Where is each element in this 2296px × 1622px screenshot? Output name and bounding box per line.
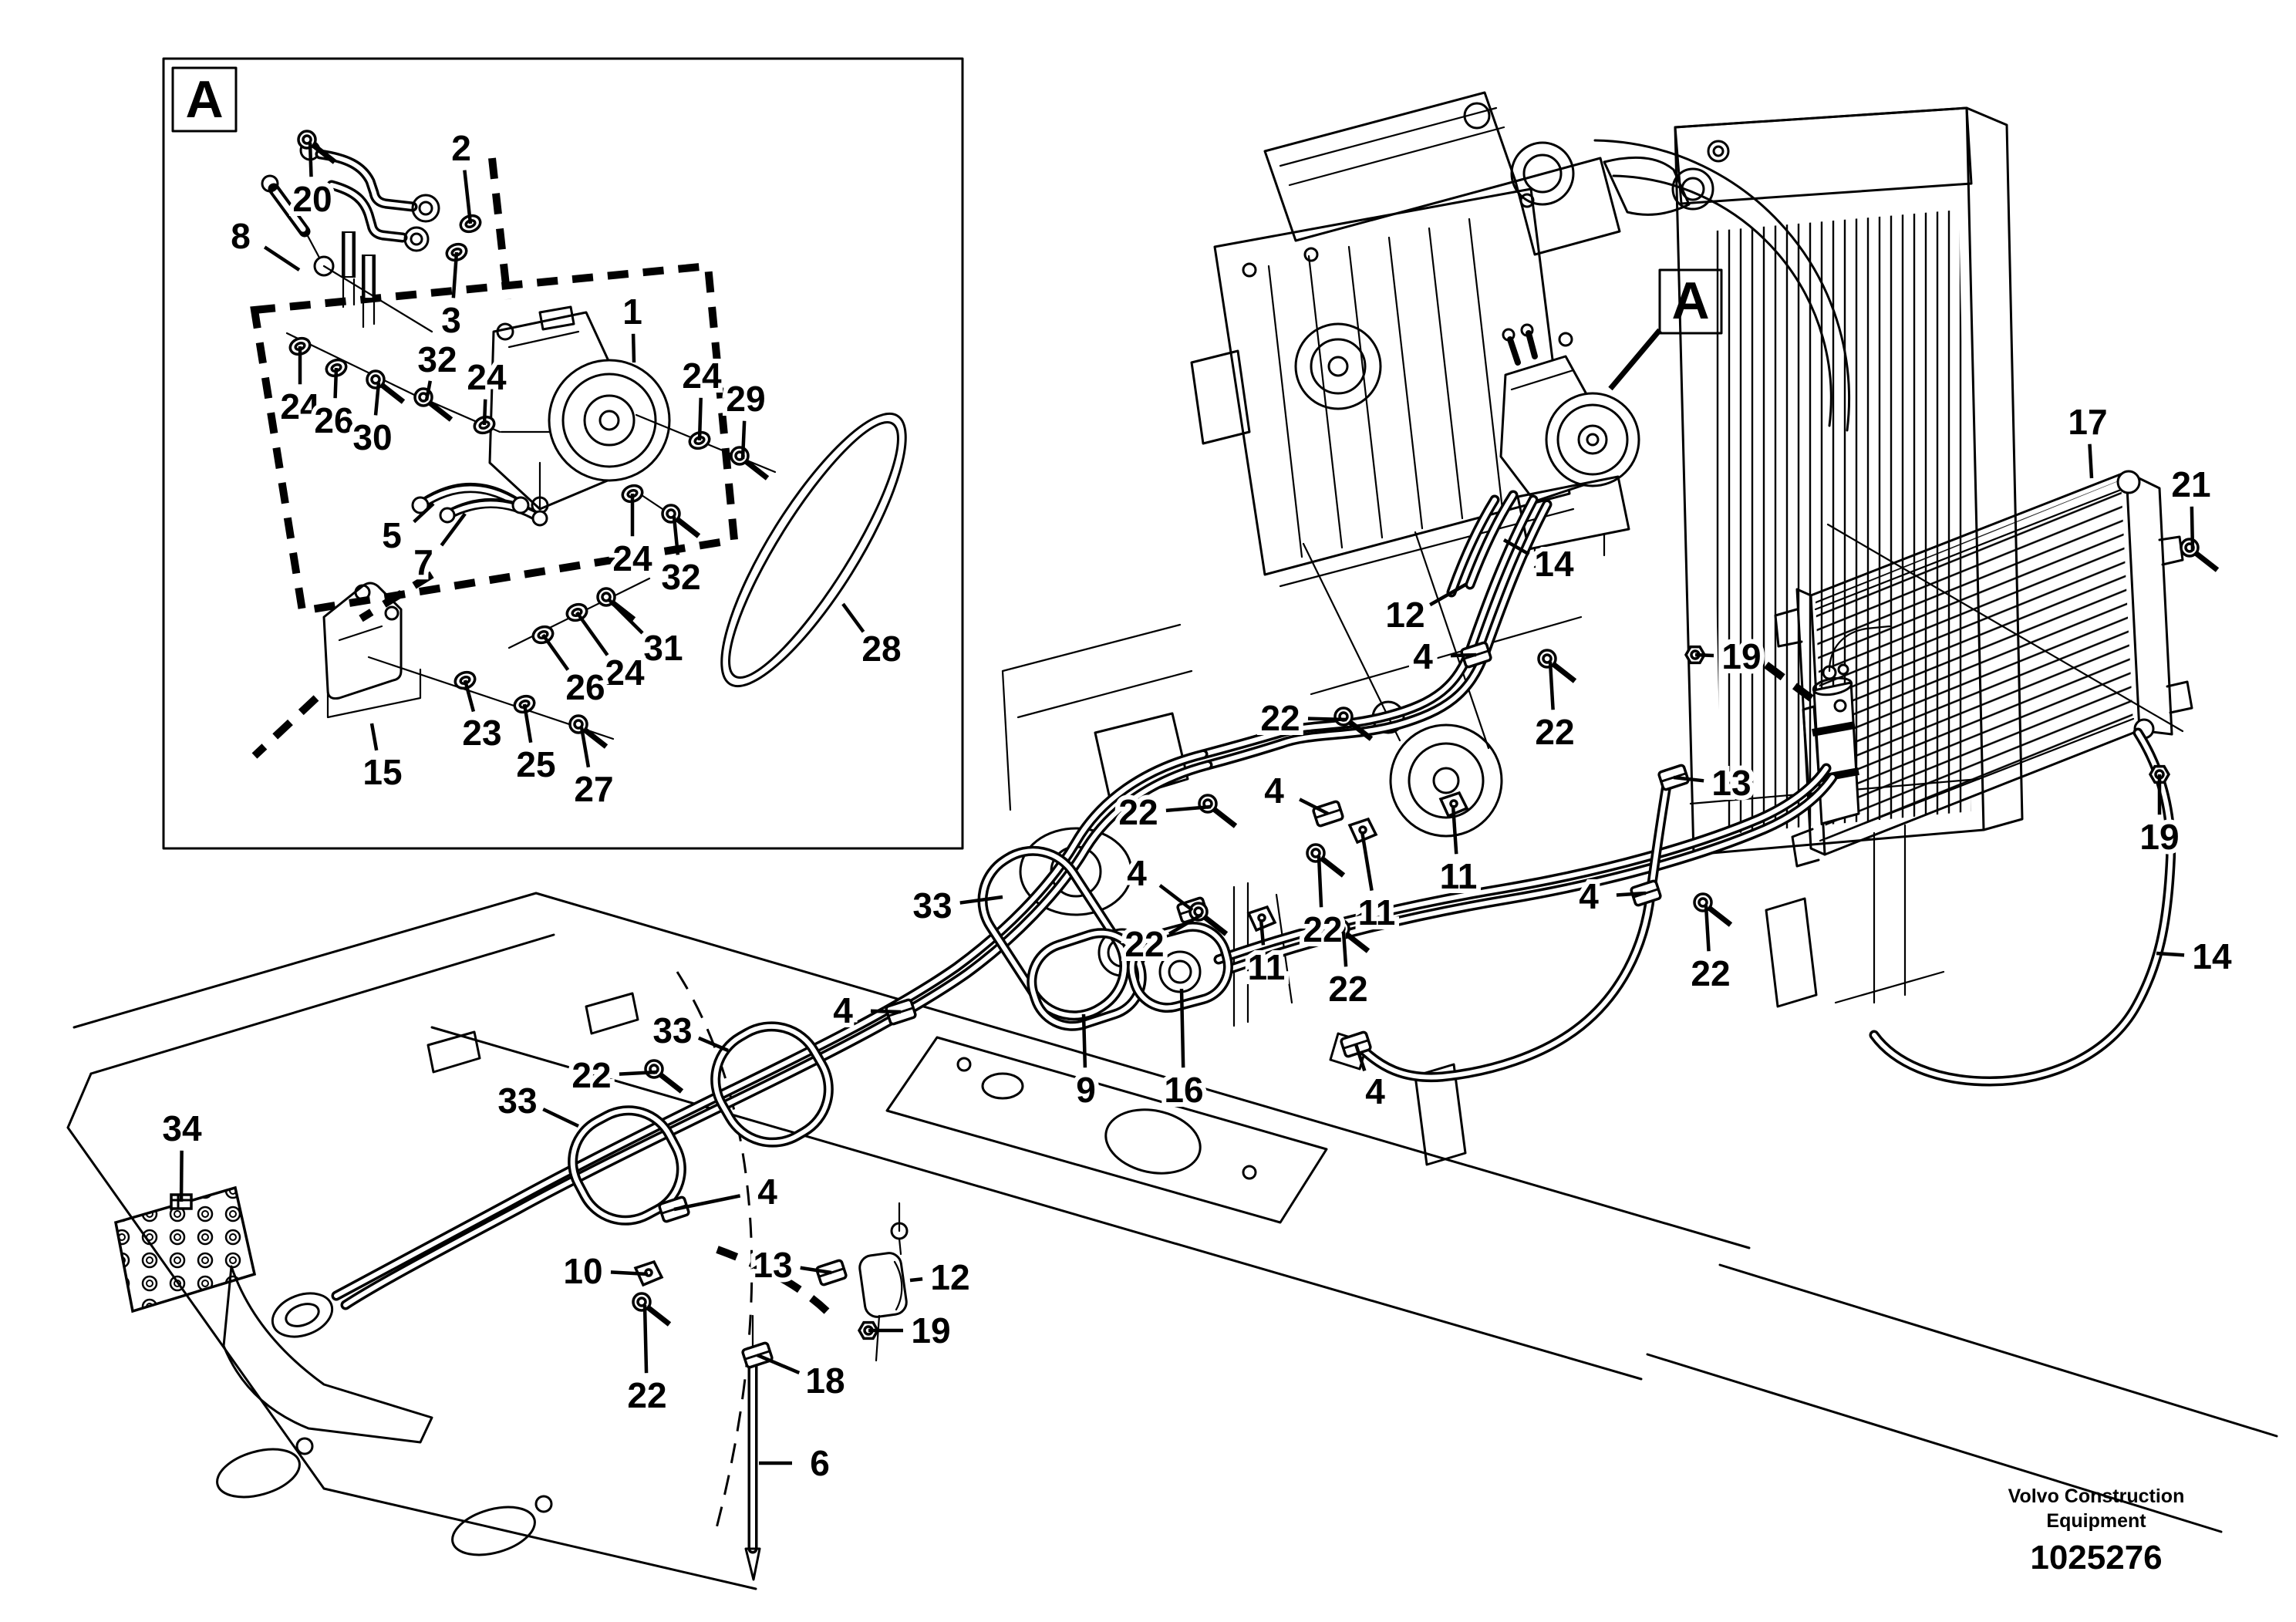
callout-leader — [1308, 719, 1347, 720]
callout-7: 7 — [413, 542, 433, 582]
callout-6: 6 — [810, 1443, 830, 1483]
callout-22: 22 — [1303, 909, 1342, 949]
callout-5: 5 — [382, 515, 402, 555]
part-glyph-bolt — [1199, 795, 1236, 826]
callout-leader — [609, 600, 642, 633]
part-glyph-bolt — [633, 1293, 669, 1324]
callout-22: 22 — [1691, 953, 1730, 993]
callout-19: 19 — [1721, 636, 1761, 676]
callout-22: 22 — [627, 1375, 666, 1415]
callout-11: 11 — [1358, 892, 1396, 932]
callout-30: 30 — [352, 417, 392, 457]
callout-14: 14 — [2192, 936, 2232, 976]
callout-25: 25 — [516, 744, 555, 784]
callout-24: 24 — [467, 357, 507, 397]
chassis-frame — [68, 825, 2277, 1589]
drain-valve — [858, 1252, 909, 1319]
callout-leader — [543, 1109, 578, 1126]
callout-leader — [843, 604, 863, 632]
callout-3: 3 — [441, 300, 461, 340]
callout-19: 19 — [2139, 817, 2179, 857]
callout-26: 26 — [565, 667, 605, 707]
callout-leader — [743, 421, 744, 459]
part-glyph-bolt — [415, 389, 451, 420]
callout-leader — [484, 400, 485, 425]
callout-leader — [619, 1072, 657, 1074]
callout-23: 23 — [462, 713, 501, 753]
callout-20: 20 — [292, 179, 332, 219]
callout-22: 22 — [1260, 698, 1300, 738]
compressor-bracket — [324, 583, 420, 717]
callout-11: 11 — [1440, 856, 1478, 896]
callout-11: 11 — [1248, 947, 1286, 987]
callout-leader — [871, 1011, 901, 1012]
callout-9: 9 — [1076, 1070, 1096, 1110]
callout-leader — [1182, 989, 1183, 1067]
part-glyph-bolt — [570, 716, 606, 747]
callout-leader — [1695, 655, 1714, 656]
callout-leader — [1261, 919, 1263, 945]
callout-leader — [611, 1272, 648, 1274]
callout-12: 12 — [1385, 595, 1424, 635]
callout-19: 19 — [911, 1310, 950, 1351]
callout-leader — [181, 1151, 182, 1202]
callout-4: 4 — [1413, 636, 1433, 676]
callout-22: 22 — [1124, 924, 1164, 964]
callout-leader — [265, 247, 299, 270]
callout-4: 4 — [757, 1172, 777, 1212]
callout-4: 4 — [1579, 876, 1599, 916]
callout-leader — [1160, 885, 1192, 910]
callout-21: 21 — [2171, 464, 2210, 504]
callout-leader — [1344, 932, 1346, 966]
callout-29: 29 — [726, 379, 765, 419]
callout-leader — [2156, 953, 2184, 955]
footer: Volvo Construction Equipment 1025276 — [2008, 1485, 2185, 1576]
callout-13: 13 — [1711, 763, 1751, 803]
refrigerant-pipes — [301, 141, 439, 327]
callout-22: 22 — [571, 1055, 611, 1095]
footer-brand-line2: Equipment — [2046, 1510, 2146, 1532]
callout-leader — [2089, 444, 2092, 478]
callout-leader — [2192, 507, 2193, 551]
callout-4: 4 — [1365, 1071, 1385, 1111]
callout-22: 22 — [1328, 969, 1367, 1009]
detail-marker-inset: A — [173, 68, 236, 131]
callout-34: 34 — [162, 1108, 202, 1148]
parts-diagram: A — [0, 0, 2296, 1622]
part-glyph-bolt — [1307, 845, 1344, 875]
detail-marker-main: A — [1610, 270, 1721, 389]
footer-drawing-number: 1025276 — [2030, 1539, 2162, 1576]
callout-leader — [335, 368, 336, 398]
part-glyph-bolt — [1539, 650, 1575, 681]
callout-15: 15 — [362, 752, 402, 792]
callout-31: 31 — [643, 628, 683, 668]
callout-leader — [1706, 905, 1709, 951]
callout-leader — [1550, 662, 1553, 710]
callout-2: 2 — [451, 128, 471, 168]
hardware-axes — [287, 266, 775, 739]
callout-27: 27 — [574, 769, 613, 809]
callout-16: 16 — [1164, 1070, 1203, 1110]
callout-13: 13 — [753, 1245, 792, 1285]
part-glyph-bolt — [646, 1061, 682, 1091]
parts-diagram-sheet: A — [0, 0, 2296, 1622]
callout-leader — [633, 334, 634, 363]
callout-4: 4 — [1127, 853, 1147, 893]
part-glyph-bolt — [598, 588, 634, 619]
callout-10: 10 — [563, 1251, 602, 1291]
callout-leader — [1084, 1014, 1085, 1067]
footer-brand-line1: Volvo Construction — [2008, 1485, 2185, 1507]
part-glyph-bolt — [2181, 539, 2217, 570]
callout-18: 18 — [805, 1361, 845, 1401]
callout-4: 4 — [833, 990, 853, 1030]
callout-33: 33 — [497, 1081, 537, 1121]
callout-14: 14 — [1534, 544, 1574, 584]
inset-panel: A — [164, 59, 963, 848]
callout-leader — [372, 723, 376, 750]
part-glyph-bolt — [663, 505, 699, 536]
part-glyph-bolt — [1694, 894, 1731, 925]
callout-33: 33 — [652, 1010, 692, 1050]
main-marker-letter: A — [1671, 271, 1709, 330]
inset-marker-letter: A — [185, 70, 223, 129]
callout-32: 32 — [661, 557, 700, 597]
callout-leader — [310, 143, 312, 177]
callout-24: 24 — [612, 538, 652, 578]
callout-leader — [700, 398, 701, 440]
callout-28: 28 — [861, 629, 901, 669]
callout-32: 32 — [417, 339, 457, 379]
part-glyph-bolt — [731, 447, 767, 478]
callout-26: 26 — [314, 400, 353, 440]
callout-12: 12 — [930, 1257, 969, 1297]
callout-22: 22 — [1118, 792, 1158, 832]
callout-leader — [1451, 655, 1476, 656]
callout-leader — [1617, 893, 1646, 895]
callout-leader — [543, 635, 568, 670]
callout-24: 24 — [682, 356, 722, 396]
callout-33: 33 — [912, 885, 952, 926]
callout-leader — [910, 1279, 922, 1280]
compressor-inset — [490, 307, 669, 513]
callout-8: 8 — [231, 216, 251, 256]
callout-22: 22 — [1535, 712, 1574, 752]
callout-24: 24 — [605, 653, 645, 693]
callout-4: 4 — [1264, 771, 1284, 811]
callout-leader — [1362, 831, 1372, 891]
callout-leader — [577, 612, 608, 655]
callout-leader — [645, 1305, 646, 1373]
callout-1: 1 — [622, 292, 642, 332]
callout-17: 17 — [2068, 402, 2107, 442]
callout-leader — [1319, 856, 1321, 907]
